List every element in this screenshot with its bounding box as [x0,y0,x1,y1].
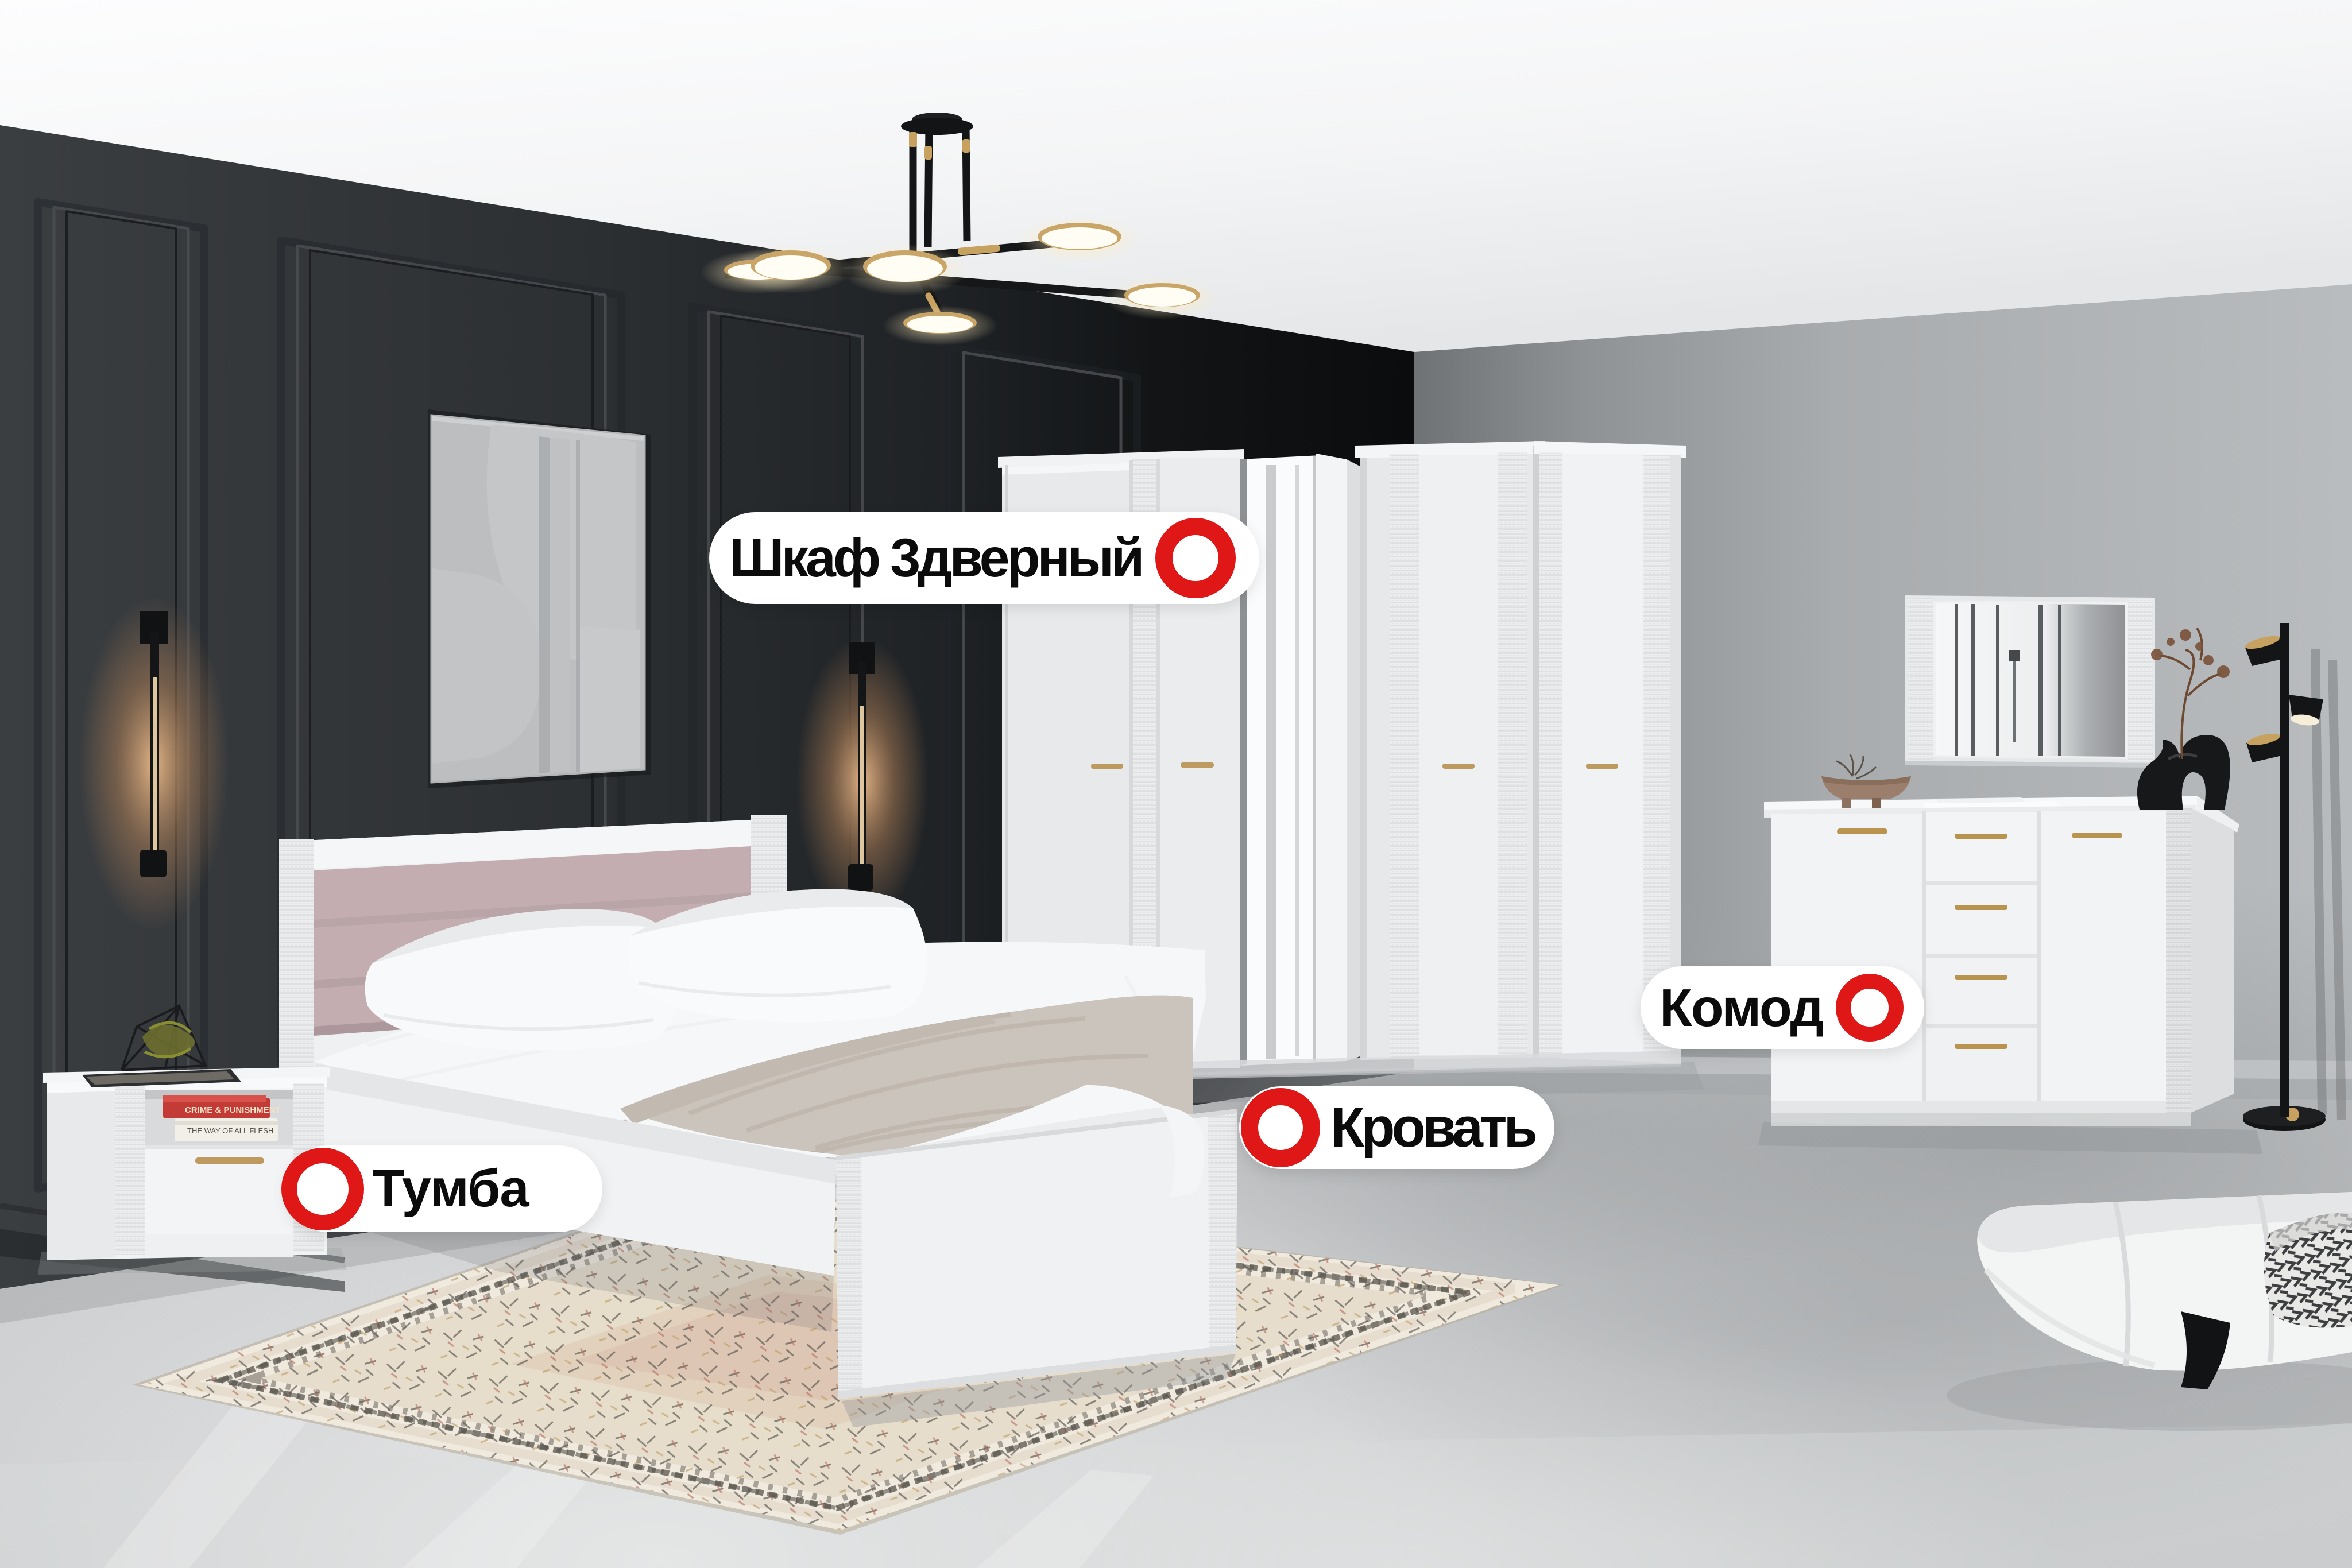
svg-text:THE WAY OF ALL FLESH: THE WAY OF ALL FLESH [187,1126,273,1135]
svg-text:CRIME & PUNISHMENT: CRIME & PUNISHMENT [185,1105,281,1115]
